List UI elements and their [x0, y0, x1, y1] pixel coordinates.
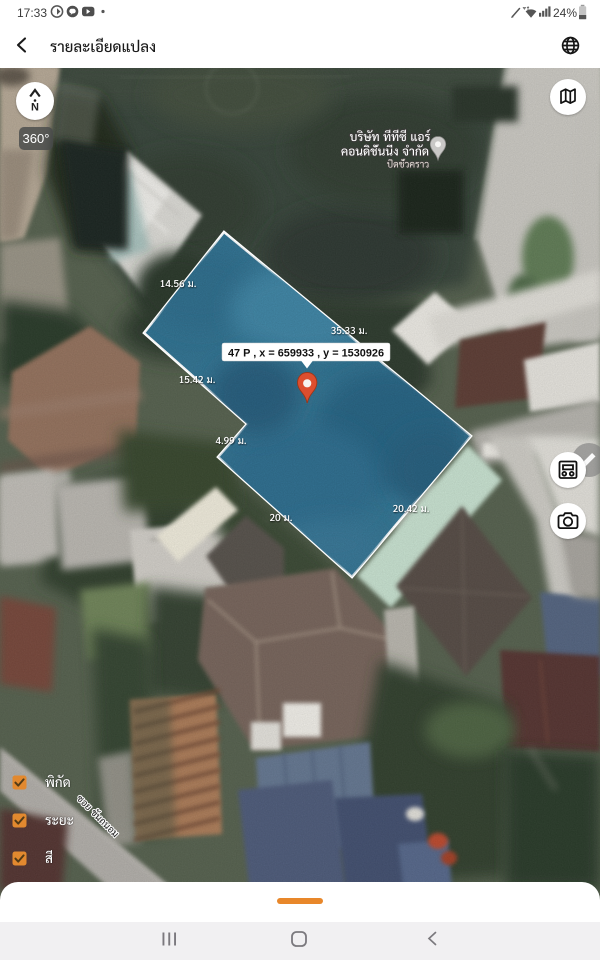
- svg-text:N: N: [31, 102, 39, 114]
- svg-text:47 P , x = 659933 , y = 153092: 47 P , x = 659933 , y = 1530926: [228, 347, 384, 359]
